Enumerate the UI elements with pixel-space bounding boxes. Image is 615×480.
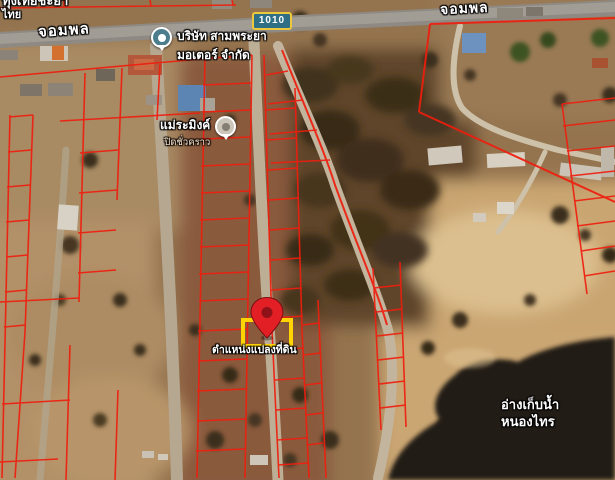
business-poi-name-line1: บริษัท สามพระยา: [177, 27, 267, 46]
place-label-topleft-line1: ทุ่งเทียชะยา: [2, 0, 68, 9]
place-label-topleft: ทุ่งเทียชะยา ไทย: [2, 0, 68, 22]
business-poi[interactable]: บริษัท สามพระยา มอเตอร์ จำกัด: [151, 27, 267, 65]
business-poi-label[interactable]: บริษัท สามพระยา มอเตอร์ จำกัด: [177, 27, 267, 65]
road-label-left: จอมพล: [37, 20, 90, 41]
map-canvas[interactable]: ทุ่งเทียชะยา ไทย จอมพล จอมพล 1010 บริษัท…: [0, 0, 615, 480]
parcel-marker-label: ตำแหน่งแปลงที่ดิน: [212, 344, 297, 356]
closed-poi[interactable]: แม่ระมิงค์ ปิดชั่วคราว: [160, 116, 236, 150]
reservoir-label: อ่างเก็บน้ำ หนองไทร: [501, 396, 559, 430]
road-label-right: จอมพล: [440, 0, 489, 17]
map-pin-icon-gray[interactable]: [215, 116, 236, 137]
place-label-topleft-line2: ไทย: [2, 9, 68, 22]
closed-poi-label[interactable]: แม่ระมิงค์ ปิดชั่วคราว: [160, 116, 210, 150]
business-poi-name-line2: มอเตอร์ จำกัด: [177, 46, 267, 65]
closed-poi-name: แม่ระมิงค์: [160, 116, 210, 135]
closed-poi-status: ปิดชั่วคราว: [160, 135, 210, 150]
map-pin-icon-teal[interactable]: [151, 27, 172, 48]
reservoir-label-line1: อ่างเก็บน้ำ: [501, 396, 559, 413]
reservoir-label-line2: หนองไทร: [501, 413, 559, 430]
